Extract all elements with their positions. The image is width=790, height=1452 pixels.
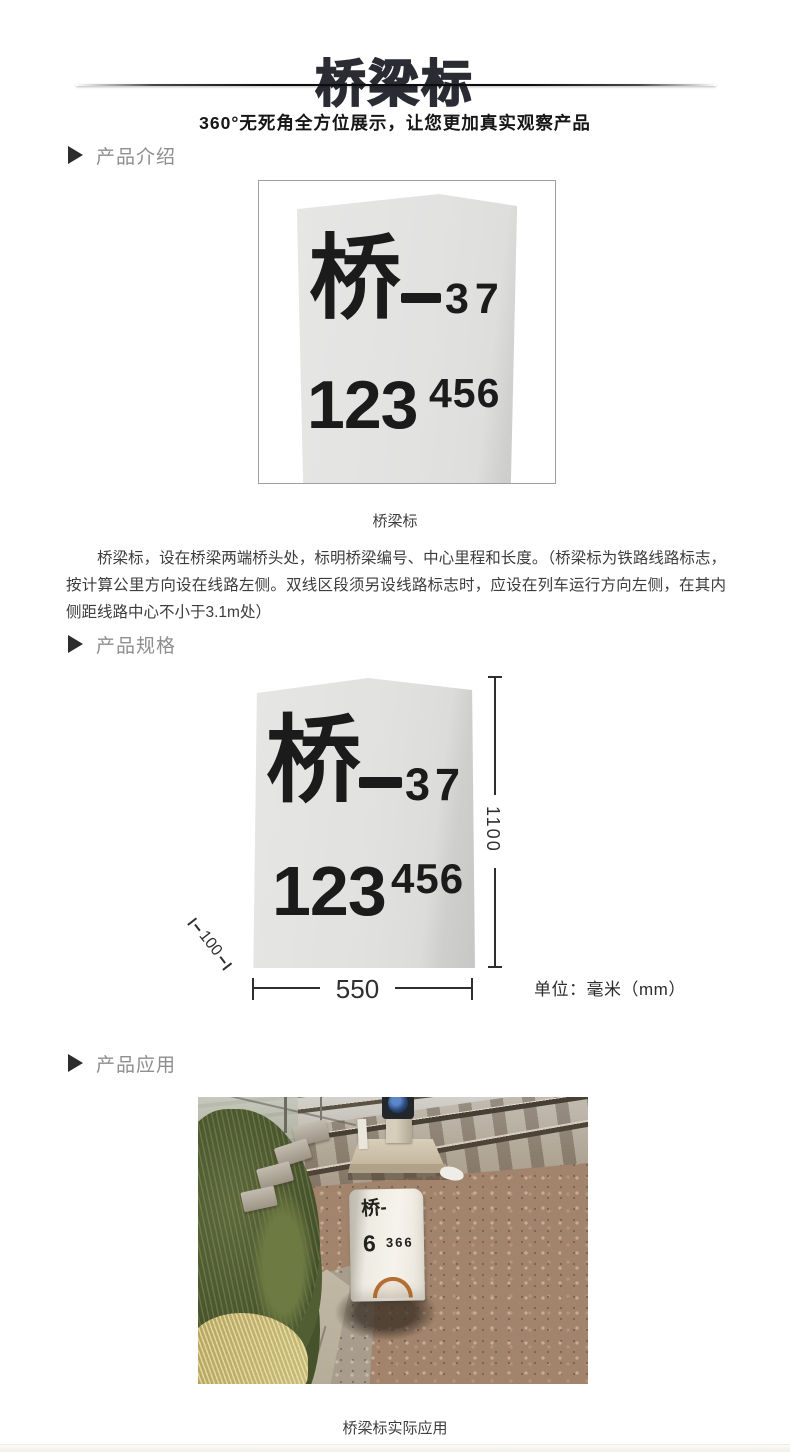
photo-marker-km-main: 6 — [363, 1232, 376, 1255]
marker-bridge-number: 37 — [445, 278, 505, 321]
section-heading-spec-label: 产品规格 — [96, 631, 176, 658]
dim-thickness: 100 — [185, 915, 235, 972]
photo-marker-prefix: 桥- — [361, 1198, 388, 1219]
application-photo-caption: 桥梁标实际应用 — [0, 1417, 790, 1438]
dim-height-line — [494, 868, 496, 968]
marker-km-main: 123 — [307, 371, 417, 439]
section-heading-spec: 产品规格 — [68, 632, 176, 656]
dim-width-tick-left — [252, 978, 254, 1000]
marker-km-main: 123 — [272, 856, 386, 926]
section-heading-intro: 产品介绍 — [68, 143, 176, 167]
spec-diagram-stone-graphic: 桥 37 123 456 — [252, 670, 475, 968]
section-heading-application-label: 产品应用 — [96, 1050, 176, 1077]
photo-pole — [284, 1097, 287, 1133]
title-divider — [76, 84, 716, 86]
photo-signal-platform-edge — [348, 1164, 448, 1173]
application-photo: 桥- 6 366 — [198, 1097, 588, 1384]
bridge-marker-stone-graphic: 桥 37 123 456 — [259, 181, 555, 483]
section-arrow-icon — [68, 1054, 83, 1072]
section-heading-intro-label: 产品介绍 — [96, 142, 176, 169]
section-arrow-icon — [68, 635, 83, 653]
page-subtitle: 360°无死角全方位展示，让您更加真实观察产品 — [0, 110, 790, 135]
marker-km-sub: 456 — [391, 858, 464, 900]
marker-prefix-char: 桥 — [309, 233, 401, 325]
intro-image-caption: 桥梁标 — [0, 510, 790, 531]
photo-platform-shadow — [348, 1173, 450, 1180]
marker-bridge-number: 37 — [405, 762, 465, 807]
section-heading-application: 产品应用 — [68, 1051, 176, 1075]
unit-note: 单位：毫米（mm） — [534, 975, 686, 1000]
dim-width-label: 550 — [325, 974, 390, 1005]
dim-width-tick-right — [471, 978, 473, 1000]
marker-km-sub: 456 — [429, 373, 500, 414]
dim-height-tick-bottom — [488, 966, 502, 968]
dim-thickness-line — [194, 924, 201, 932]
dim-thickness-line — [219, 956, 226, 964]
product-detail-page: 桥梁标 360°无死角全方位展示，让您更加真实观察产品 产品介绍 桥 37 12… — [0, 0, 790, 1452]
photo-pole — [320, 1097, 322, 1121]
marker-dash — [401, 293, 441, 303]
section-arrow-icon — [68, 146, 83, 164]
photo-bridge-marker-stone: 桥- 6 366 — [349, 1188, 425, 1301]
dim-width-line — [395, 987, 473, 989]
next-section-edge — [0, 1444, 790, 1452]
marker-dash — [359, 777, 402, 788]
product-description: 桥梁标，设在桥梁两端桥头处，标明桥梁编号、中心里程和长度。（桥梁标为铁路线路标志… — [66, 545, 726, 627]
dim-height-line — [494, 678, 496, 795]
photo-rust-stain — [373, 1277, 413, 1299]
marker-prefix-char: 桥 — [266, 714, 361, 809]
photo-marker-km-sub: 366 — [386, 1236, 414, 1249]
dim-width-line — [252, 987, 320, 989]
photo-white-post — [357, 1119, 368, 1149]
dim-height-label: 1100 — [482, 806, 503, 853]
product-intro-image: 桥 37 123 456 — [258, 180, 556, 484]
